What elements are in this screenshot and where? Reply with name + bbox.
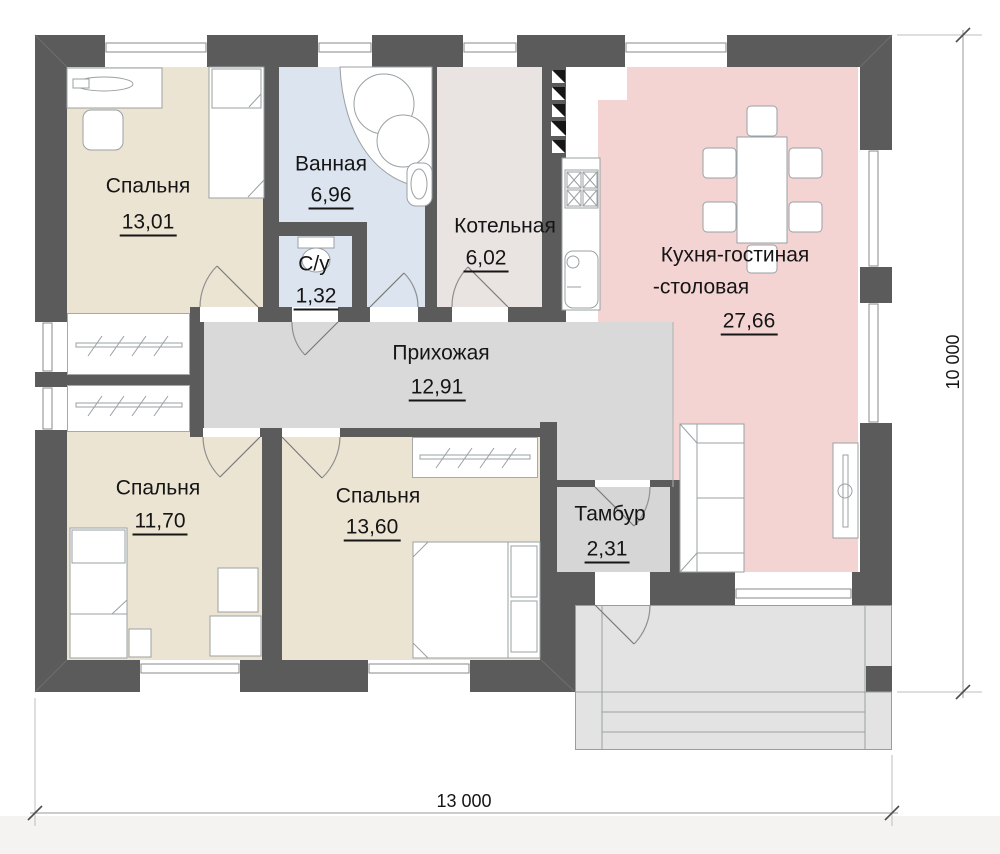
kitchen-sink-icon [565, 251, 598, 308]
door-opening [200, 307, 258, 322]
window [625, 35, 727, 67]
wall-segment [263, 67, 279, 322]
room-label-kitchen-line1: Кухня-гостиная [661, 245, 810, 266]
window [368, 660, 470, 692]
room-hallway-floor [557, 422, 673, 487]
area-label-bathroom: 6,96 [309, 185, 354, 206]
dimension-line-right [897, 28, 982, 699]
door-opening [282, 428, 340, 437]
wall-segment [338, 307, 370, 322]
area-label-bedroom-bottom-left: 11,70 [133, 511, 188, 532]
room-bathroom-floor [367, 222, 425, 307]
window [35, 322, 67, 372]
window [318, 35, 372, 67]
room-label-bathroom: Ванная [295, 154, 367, 175]
porch-pillar [866, 666, 892, 692]
door-opening [203, 428, 260, 437]
window [463, 35, 517, 67]
area-label-kitchen: 27,66 [721, 311, 778, 332]
area-label-bedroom-top-left: 13,01 [120, 212, 177, 233]
room-label-kitchen-line2: -столовая [653, 277, 749, 298]
door-opening [370, 307, 418, 322]
stove-icon [565, 170, 598, 208]
wall-segment [190, 307, 204, 437]
wall-segment [352, 236, 367, 307]
window [105, 35, 207, 67]
wall-segment [279, 222, 367, 236]
wardrobe-niche [67, 385, 190, 432]
wall-segment [340, 428, 540, 437]
wardrobe-niche [412, 437, 538, 478]
area-label-boiler: 6,02 [464, 248, 509, 269]
door-opening [452, 307, 508, 322]
room-bedroom-bottom-left-floor [67, 432, 262, 660]
window [860, 150, 892, 267]
room-label-boiler: Котельная [454, 216, 556, 237]
window [35, 387, 67, 430]
window [860, 303, 892, 423]
wall-segment [540, 422, 557, 660]
room-label-hallway: Прихожая [392, 343, 489, 364]
wall-segment [35, 660, 575, 692]
room-label-bedroom-bottom-left: Спальня [116, 478, 200, 499]
wall-segment [557, 480, 595, 487]
wall-segment [262, 428, 282, 660]
room-kitchen-floor [627, 67, 858, 100]
porch [575, 605, 892, 750]
door-opening [595, 480, 650, 487]
wall-segment [418, 307, 452, 322]
area-label-wc: 1,32 [294, 286, 339, 307]
wall-segment [650, 480, 670, 487]
wall-segment [670, 480, 684, 572]
area-label-hallway: 12,91 [409, 377, 466, 398]
dimension-label-height: 10 000 [944, 334, 962, 389]
wall-segment [190, 428, 203, 437]
kitchen-counter [562, 158, 600, 310]
room-label-vestibule: Тамбур [574, 504, 645, 525]
wall-segment [425, 67, 437, 322]
window [735, 572, 852, 605]
floor-plan-canvas: Спальня 13,01 Ванная 6,96 С/у 1,32 Котел… [0, 0, 1000, 854]
area-label-vestibule: 2,31 [585, 539, 630, 560]
area-label-bedroom-bottom-middle: 13,60 [344, 517, 401, 538]
wall-segment [508, 307, 564, 322]
wardrobe-niche [67, 313, 190, 375]
page-margin-strip [0, 816, 1000, 854]
room-label-bedroom-top-left: Спальня [106, 176, 190, 197]
wall-segment [67, 375, 190, 385]
room-label-wc: С/у [298, 254, 330, 275]
window [140, 660, 240, 692]
wall-segment [542, 67, 566, 322]
door-opening [595, 572, 650, 605]
dimension-label-width: 13 000 [436, 792, 491, 810]
wall-segment [258, 307, 292, 322]
room-label-bedroom-bottom-middle: Спальня [336, 486, 420, 507]
